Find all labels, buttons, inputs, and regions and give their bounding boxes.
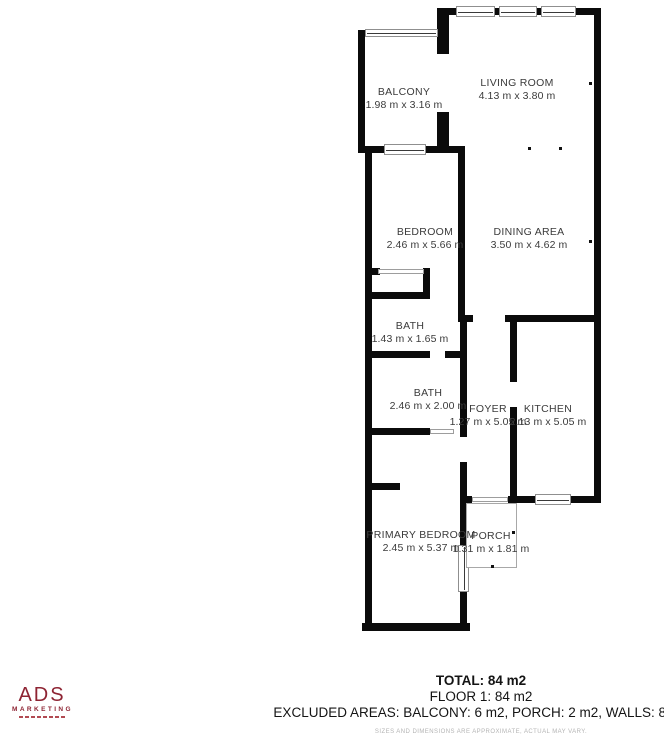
floor-area-text: FLOOR 1: 84 m2	[273, 689, 664, 705]
room-label-bedroom: BEDROOM 2.46 m x 5.66 m	[387, 226, 464, 252]
logo-word-text: MARKETING	[12, 706, 72, 713]
wall-segment	[365, 351, 430, 358]
window-symbol	[541, 6, 576, 17]
dimension-dot	[528, 147, 531, 150]
area-summary: TOTAL: 84 m2 FLOOR 1: 84 m2 EXCLUDED ARE…	[273, 673, 664, 721]
wall-segment	[372, 483, 400, 490]
wall-segment	[460, 496, 472, 503]
room-dims: 1.43 m x 1.65 m	[372, 333, 449, 346]
wall-segment	[594, 8, 601, 503]
wall-segment	[362, 623, 470, 631]
dimension-dot	[589, 82, 592, 85]
logo-tagline-line	[19, 716, 65, 718]
wall-segment	[365, 153, 372, 631]
room-label-porch: PORCH 1.31 m x 1.81 m	[453, 530, 530, 556]
room-name: BEDROOM	[387, 226, 464, 239]
room-name: LIVING ROOM	[479, 77, 556, 90]
door-symbol	[472, 497, 508, 502]
room-dims: 2.46 m x 5.66 m	[387, 239, 464, 252]
window-symbol	[535, 494, 571, 505]
dimension-dot	[491, 565, 494, 568]
door-symbol	[430, 429, 454, 434]
wall-segment	[365, 428, 430, 435]
room-dims: 1.98 m x 3.16 m	[366, 99, 443, 112]
ads-marketing-logo: ADS MARKETING	[12, 685, 72, 718]
room-name: DINING AREA	[491, 226, 568, 239]
room-dims: 1.31 m x 1.81 m	[453, 543, 530, 556]
wall-segment	[510, 315, 517, 382]
room-label-living-room: LIVING ROOM 4.13 m x 3.80 m	[479, 77, 556, 103]
room-label-dining-area: DINING AREA 3.50 m x 4.62 m	[491, 226, 568, 252]
wall-segment	[437, 8, 449, 54]
room-name: BATH	[372, 320, 449, 333]
window-symbol	[456, 6, 495, 17]
room-name: BALCONY	[366, 86, 443, 99]
disclaimer-text: SIZES AND DIMENSIONS ARE APPROXIMATE, AC…	[375, 729, 587, 735]
excluded-areas-text: EXCLUDED AREAS: BALCONY: 6 m2, PORCH: 2 …	[273, 705, 664, 721]
room-label-balcony: BALCONY 1.98 m x 3.16 m	[366, 86, 443, 112]
wall-segment	[358, 30, 365, 153]
logo-brand-text: ADS	[12, 685, 72, 705]
wall-segment	[505, 315, 601, 322]
window-symbol	[499, 6, 537, 17]
room-label-bath-1: BATH 1.43 m x 1.65 m	[372, 320, 449, 346]
room-name: KITCHEN	[510, 403, 587, 416]
total-area-text: TOTAL: 84 m2	[273, 673, 664, 689]
room-dims: 3.50 m x 4.62 m	[491, 239, 568, 252]
door-symbol	[378, 269, 424, 274]
window-symbol	[384, 144, 426, 155]
room-dims: 4.13 m x 3.80 m	[479, 90, 556, 103]
room-dims: 2.13 m x 5.05 m	[510, 416, 587, 429]
balcony-railing-symbol	[365, 29, 438, 37]
room-name: BATH	[390, 387, 467, 400]
room-name: PORCH	[453, 530, 530, 543]
floorplan-canvas: BALCONY 1.98 m x 3.16 m LIVING ROOM 4.13…	[0, 0, 664, 743]
wall-segment	[445, 351, 462, 358]
wall-segment	[458, 315, 473, 322]
room-label-kitchen: KITCHEN 2.13 m x 5.05 m	[510, 403, 587, 429]
wall-segment	[365, 292, 430, 299]
dimension-dot	[559, 147, 562, 150]
dimension-dot	[589, 240, 592, 243]
